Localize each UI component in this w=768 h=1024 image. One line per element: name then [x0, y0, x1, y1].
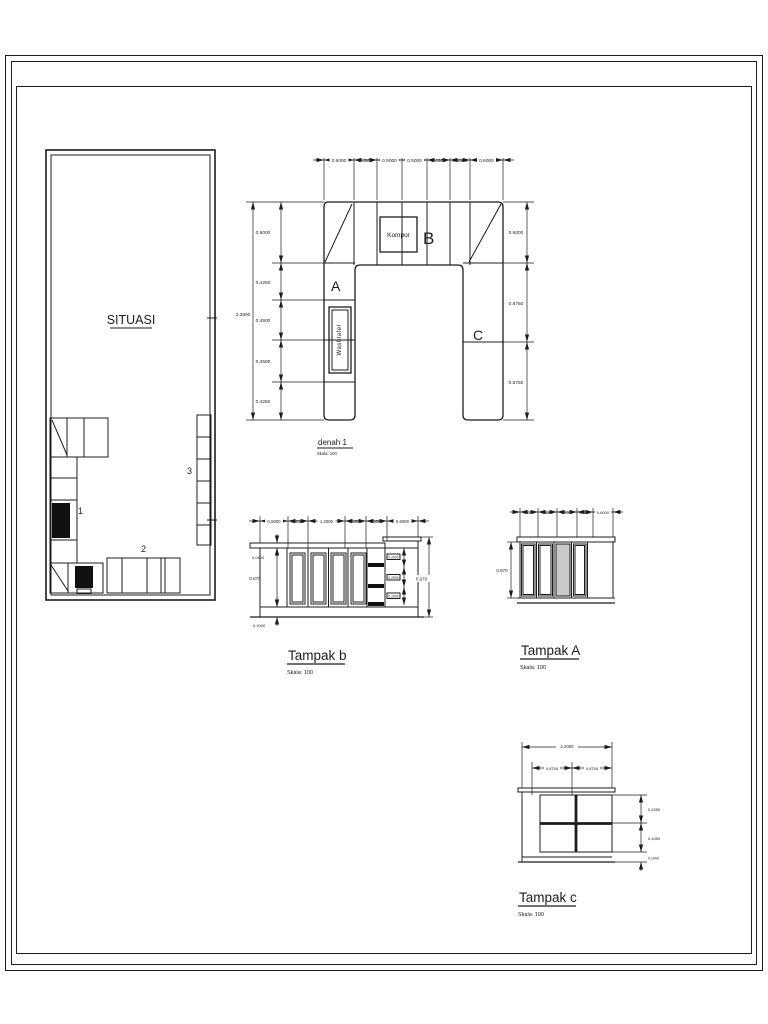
cabinet-door	[539, 544, 553, 596]
situasi-item-2: 2	[141, 544, 146, 554]
tampak-c-dim-top-0: 0,8750	[546, 766, 559, 771]
tampak-a-elevation: 0.4250 0.4500 0.4500 0.4250 0,6000	[496, 508, 623, 671]
denah-dim-top-6: 0.6000	[479, 158, 494, 164]
tampak-b-title: Tampak b	[288, 648, 347, 663]
denah-dim-right-1: 0.8750	[509, 301, 524, 307]
tampak-a-dims-top: 0.4250 0.4500 0.4500 0.4250 0,6000	[510, 508, 623, 537]
denah-title: denah 1	[318, 438, 347, 447]
denah-dim-top-5: 0.4500	[453, 158, 468, 164]
tampak-b-dim-top-1: 0.4500	[291, 519, 305, 524]
tampak-c-scale: Skala: 100	[518, 912, 544, 918]
raised-counter	[383, 537, 421, 541]
tampak-a-dim-top-2: 0.4500	[562, 511, 573, 515]
denah-dims-left: 2.3500 0.6000 0.4250 0.4500 0.4500 0.425…	[236, 202, 324, 420]
situasi-corner-bottomleft	[50, 563, 103, 594]
denah-dim-left-1: 0.4250	[256, 280, 271, 286]
situasi-cabinet-left-strip	[50, 457, 77, 563]
tampak-b-dim-left-1: 0,870	[249, 576, 261, 581]
tampak-a-dim-top-3: 0.4250	[580, 511, 591, 515]
sheet-border-frame	[6, 56, 763, 971]
denah-label-c: C	[473, 327, 483, 343]
denah-dim-right-0: 0.6000	[509, 230, 524, 236]
appliance-block	[52, 503, 70, 538]
cabinet-door	[522, 544, 536, 596]
tampak-b-dim-top-5: 0.6000	[396, 519, 410, 524]
tampak-b-dim-top-0: 0.6000	[267, 519, 281, 524]
tampak-b-dims-drawers: 0.2900 0.2900 0.2900	[387, 548, 404, 605]
tampak-b-dim-drawer-2: 0.2900	[388, 595, 398, 599]
situasi-item-3: 3	[187, 466, 192, 476]
washtafel-label: Washtafel	[337, 325, 343, 356]
tampak-b-dim-right: 0,970	[416, 577, 428, 582]
situasi-counter-topleft	[50, 418, 108, 457]
denah-dim-right-2: 0.8750	[509, 380, 524, 386]
drawer-handle	[368, 584, 384, 588]
tampak-b-dim-drawer-1: 0.2900	[388, 576, 398, 580]
tampak-b-scale: Skala: 100	[287, 670, 313, 676]
denah-label-b: B	[423, 229, 434, 248]
tampak-c-dims-top: 2.2000 0,8750 0,8750	[522, 742, 612, 795]
drawer-handle	[368, 563, 384, 567]
denah-dim-total-left: 2.3500	[236, 312, 251, 318]
denah-dim-top-1: 0.4500	[358, 158, 373, 164]
tampak-a-dim-left: 0,870	[496, 542, 517, 598]
tampak-b-dim-top-4: 0.4500	[370, 519, 384, 524]
denah-dim-left-2: 0.4500	[256, 318, 271, 324]
tampak-c-dim-total: 2.2000	[560, 744, 574, 749]
situasi-plan: 1 2 3 SITUASI	[46, 150, 217, 600]
cad-drawing: 1 2 3 SITUASI Kompor B A C	[0, 0, 768, 1024]
denah-plan: Kompor B A C Washtafel	[236, 157, 534, 456]
denah-scale: Skala: 100	[317, 451, 337, 456]
denah-dim-left-0: 0.6000	[256, 230, 271, 236]
tampak-b-dim-left-2: 0,1000	[253, 623, 266, 628]
stove-block	[75, 566, 93, 588]
tampak-a-title: Tampak A	[521, 643, 580, 658]
tampak-b-elevation: 0.6000 0.4500 1.2000 0.4500 0.4500 0.600…	[249, 516, 433, 676]
tampak-c-dims-right: 0,4350 0,4350 0,1000	[612, 795, 661, 871]
tampak-c-title: Tampak c	[519, 890, 577, 905]
countertop	[517, 537, 615, 542]
tampak-b-dim-top-3: 0.4500	[349, 519, 363, 524]
denah-dim-top-3: 0.5000	[407, 158, 422, 164]
countertop	[250, 543, 385, 548]
tampak-b-dim-top-2: 1.2000	[320, 519, 334, 524]
situasi-item-1: 1	[78, 506, 83, 516]
tampak-c-elevation: 2.2000 0,8750 0,8750	[518, 742, 661, 918]
drawer-handle	[368, 602, 384, 606]
situasi-title: SITUASI	[107, 313, 156, 327]
tampak-c-dim-right-0: 0,4350	[648, 807, 661, 812]
tampak-a-dim-top-1: 0.4500	[542, 511, 553, 515]
tampak-b-dim-drawer-0: 0.2900	[388, 556, 398, 560]
tampak-a-dim-left: 0,870	[496, 568, 508, 573]
tampak-a-dim-top-0: 0.4250	[524, 511, 535, 515]
denah-dims-top: 0.6000 0.4500 0.5000 0.5000 0.4500 0.450…	[313, 157, 514, 200]
denah-label-a: A	[331, 278, 341, 294]
tampak-a-dim-top-4: 0,6000	[597, 510, 610, 515]
tampak-a-body	[517, 537, 615, 603]
denah-dim-top-4: 0.4500	[431, 158, 446, 164]
denah-dim-left-3: 0.4500	[256, 359, 271, 365]
tampak-c-dim-right-1: 0,4350	[648, 836, 661, 841]
situasi-cabinet-bottom-row	[107, 558, 180, 593]
denah-dim-top-2: 0.5000	[382, 158, 397, 164]
denah-dim-left-4: 0.4250	[256, 399, 271, 405]
countertop	[518, 788, 615, 792]
tampak-c-dim-right-2: 0,1000	[648, 857, 659, 861]
tampak-a-scale: Skala: 100	[520, 665, 546, 671]
tampak-c-body	[518, 788, 615, 862]
kompor-label: Kompor	[387, 232, 411, 239]
tampak-b-dim-left-0: 0,0400	[252, 555, 265, 560]
denah-dims-right: 0.6000 0.8750 0.8750	[503, 202, 534, 420]
denah-dim-top-0: 0.6000	[332, 158, 347, 164]
situasi-cabinet-right-strip	[197, 415, 211, 545]
drawing-sheet: 1 2 3 SITUASI Kompor B A C	[0, 0, 768, 1024]
cabinet-door	[556, 544, 570, 596]
tampak-c-dim-top-1: 0,8750	[586, 766, 599, 771]
